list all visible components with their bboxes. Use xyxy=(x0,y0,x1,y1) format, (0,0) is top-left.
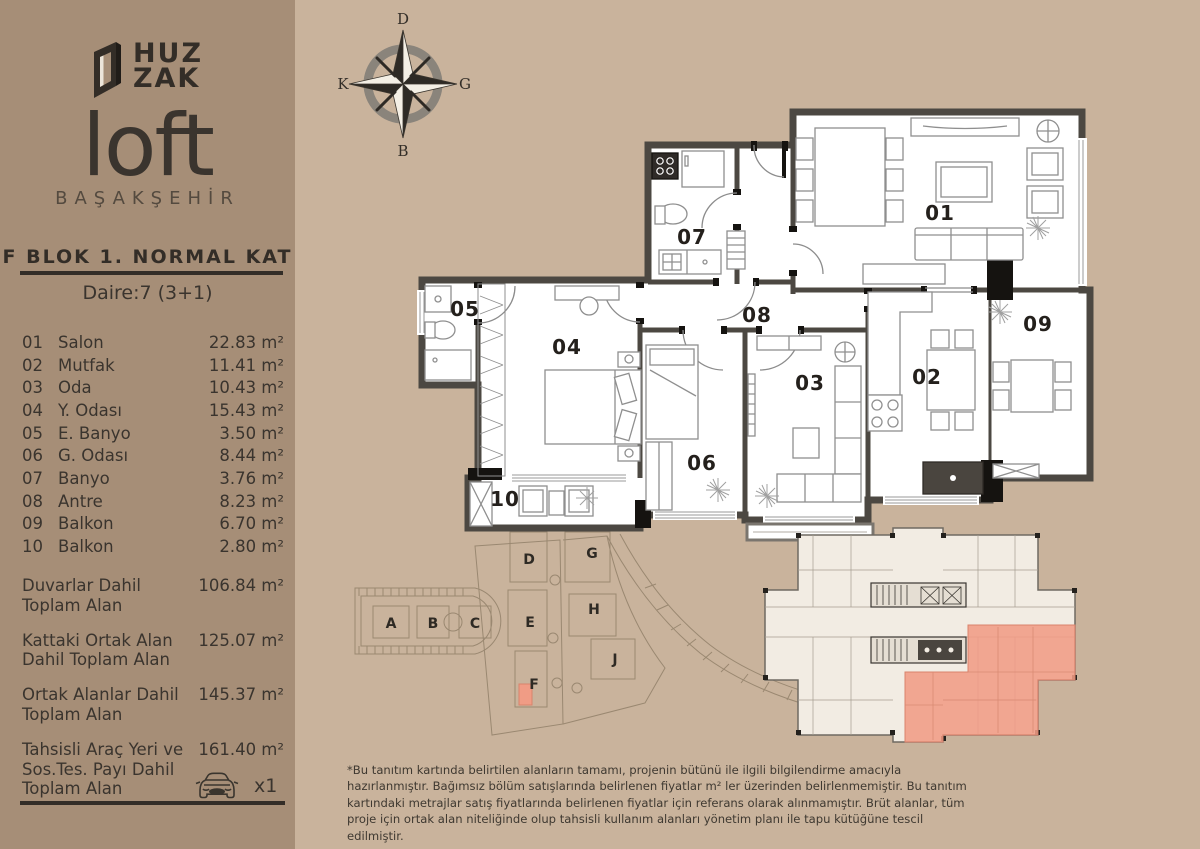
plan-room-06: 06 xyxy=(687,451,717,475)
plan-room-05: 05 xyxy=(450,297,480,321)
logo: HUZ ZAK loft BAŞAKŞEHİR xyxy=(0,40,295,209)
plan-room-09: 09 xyxy=(1023,312,1053,336)
site-block-c: C xyxy=(470,616,480,632)
plan-room-08: 08 xyxy=(742,303,772,327)
total-item: Tahsisli Araç Yeri ve Sos.Tes. Payı Dahi… xyxy=(22,740,284,799)
plan-room-03: 03 xyxy=(795,371,825,395)
room-list-item: 04Y. Odası15.43 m² xyxy=(22,399,284,422)
room-list-item: 06G. Odası8.44 m² xyxy=(22,444,284,467)
plan-room-07: 07 xyxy=(677,225,707,249)
site-block-g: G xyxy=(586,546,598,562)
compass-left-label: K xyxy=(337,75,349,93)
site-block-j: J xyxy=(611,652,617,668)
room-list-item: 03Oda10.43 m² xyxy=(22,376,284,399)
brand-name: HUZ ZAK xyxy=(133,40,203,92)
site-block-a: A xyxy=(386,616,397,632)
compass-right-label: G xyxy=(459,75,471,93)
project-location: BAŞAKŞEHİR xyxy=(0,188,295,209)
room-list: 01Salon22.83 m² 02Mutfak11.41 m² 03Oda10… xyxy=(22,331,284,558)
room-list-item: 05E. Banyo3.50 m² xyxy=(22,422,284,445)
total-item: Duvarlar Dahil Toplam Alan106.84 m² xyxy=(22,576,284,616)
compass-bottom-label: B xyxy=(397,142,408,160)
room-list-item: 07Banyo3.76 m² xyxy=(22,467,284,490)
brand-bottom: ZAK xyxy=(133,67,203,92)
site-block-f: F xyxy=(529,677,539,693)
block-title: F BLOK 1. NORMAL KAT xyxy=(0,246,295,268)
room-list-item: 09Balkon6.70 m² xyxy=(22,513,284,536)
site-block-e: E xyxy=(525,615,535,631)
disclaimer-text: *Bu tanıtım kartında belirtilen alanları… xyxy=(347,762,969,844)
site-block-b: B xyxy=(428,616,439,632)
car-icon xyxy=(192,768,242,804)
site-block-labels: A B C D E F G H J xyxy=(386,546,618,693)
plan-room-02: 02 xyxy=(912,365,942,389)
plan-room-01: 01 xyxy=(925,201,955,225)
plan-room-04: 04 xyxy=(552,335,582,359)
project-name: loft xyxy=(0,106,295,188)
parking-count: x1 xyxy=(254,775,277,797)
total-item: Kattaki Ortak Alan Dahil Toplam Alan125.… xyxy=(22,631,284,671)
huzzak-door-icon xyxy=(92,40,126,102)
room-list-item: 08Antre8.23 m² xyxy=(22,490,284,513)
site-block-d: D xyxy=(523,552,535,568)
room-list-item: 10Balkon2.80 m² xyxy=(22,535,284,558)
sidebar: HUZ ZAK loft BAŞAKŞEHİR F BLOK 1. NORMAL… xyxy=(0,0,295,849)
brochure-page: HUZ ZAK loft BAŞAKŞEHİR F BLOK 1. NORMAL… xyxy=(0,0,1200,849)
totals-list: Duvarlar Dahil Toplam Alan106.84 m² Katt… xyxy=(22,576,284,814)
room-list-item: 02Mutfak11.41 m² xyxy=(22,354,284,377)
compass-top-label: D xyxy=(397,10,409,28)
title-divider xyxy=(20,271,283,275)
room-list-item: 01Salon22.83 m² xyxy=(22,331,284,354)
floor-plan: 01 02 03 04 05 06 07 08 09 10 xyxy=(415,98,1110,550)
total-item: Ortak Alanlar Dahil Toplam Alan145.37 m² xyxy=(22,685,284,725)
key-plan xyxy=(753,495,1108,749)
site-block-h: H xyxy=(588,602,600,618)
plan-room-10: 10 xyxy=(490,487,520,511)
footer-divider xyxy=(20,801,285,805)
unit-title: Daire:7 (3+1) xyxy=(0,282,295,304)
